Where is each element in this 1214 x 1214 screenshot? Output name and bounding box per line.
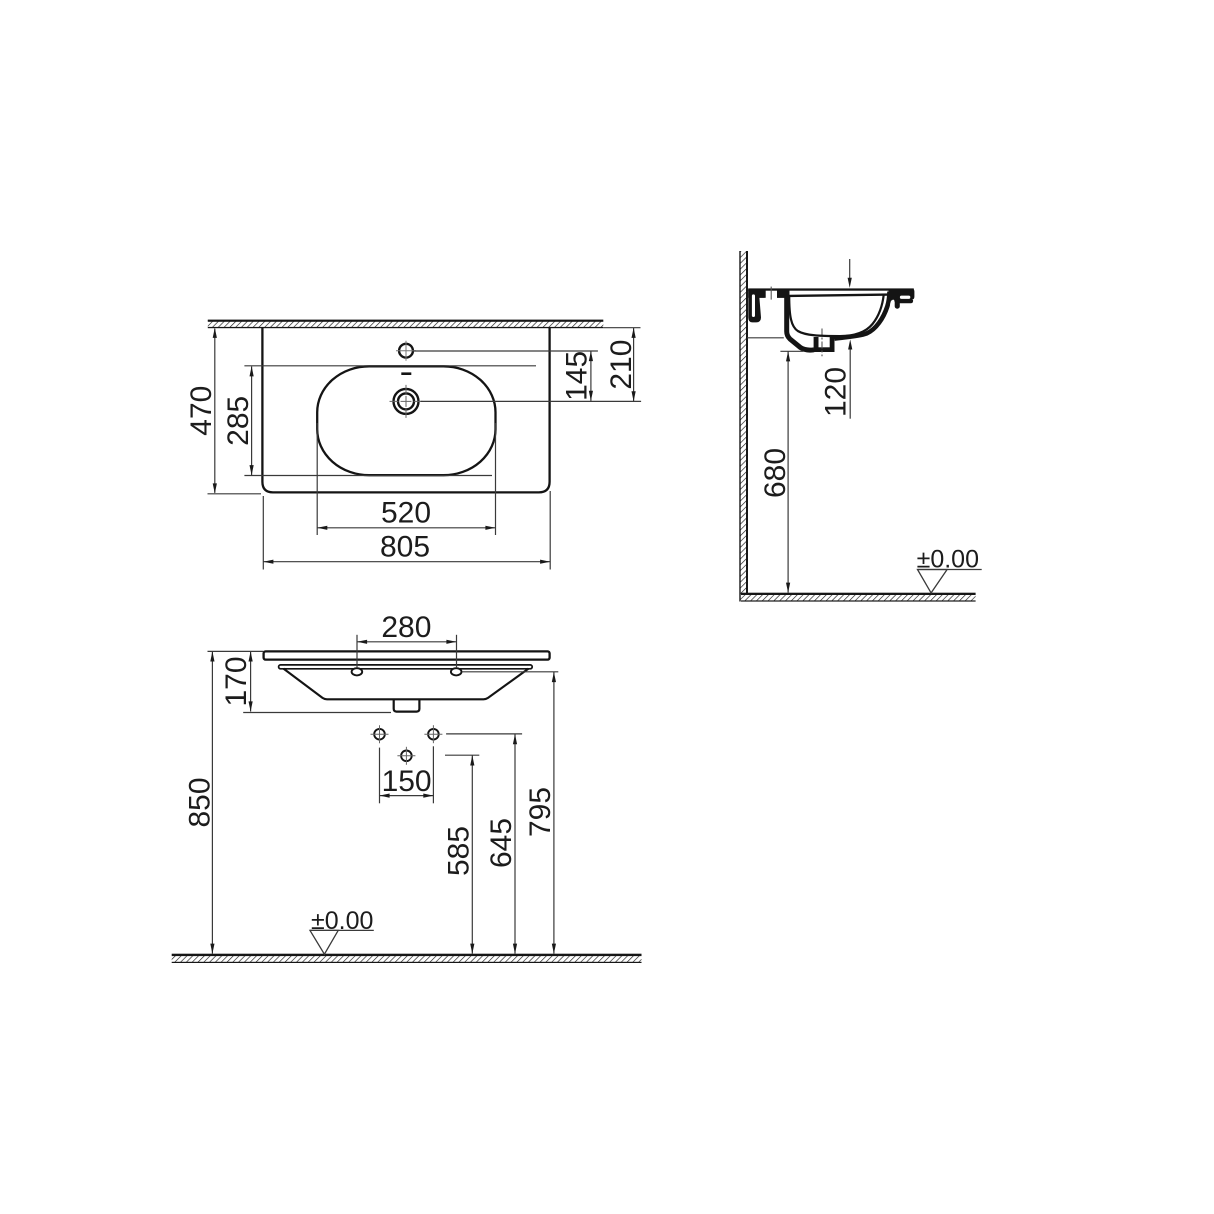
svg-text:850: 850 bbox=[184, 777, 217, 827]
svg-text:520: 520 bbox=[381, 497, 431, 530]
svg-text:150: 150 bbox=[382, 765, 432, 798]
svg-text:795: 795 bbox=[524, 787, 557, 837]
svg-text:170: 170 bbox=[220, 656, 253, 706]
svg-text:470: 470 bbox=[185, 386, 218, 436]
svg-text:680: 680 bbox=[759, 448, 792, 498]
svg-text:145: 145 bbox=[561, 351, 594, 401]
svg-text:285: 285 bbox=[222, 396, 255, 446]
svg-text:805: 805 bbox=[380, 531, 430, 564]
svg-text:645: 645 bbox=[485, 818, 518, 868]
svg-text:120: 120 bbox=[819, 367, 852, 417]
svg-text:210: 210 bbox=[605, 340, 638, 390]
svg-text:280: 280 bbox=[381, 611, 431, 644]
svg-text:585: 585 bbox=[443, 826, 476, 876]
